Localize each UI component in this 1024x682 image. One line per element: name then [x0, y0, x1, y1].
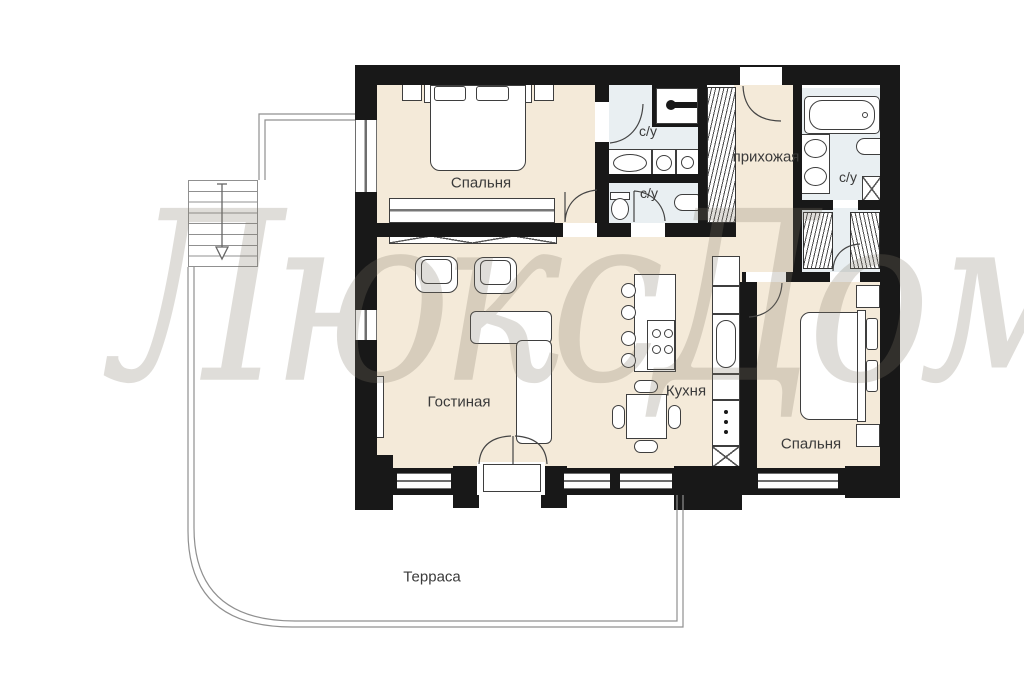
wall-pillar [355, 455, 393, 510]
double-bed [800, 312, 860, 420]
sink [613, 154, 647, 172]
wall-top [355, 65, 900, 85]
wall-masterbath-stub [793, 200, 833, 210]
wall-bath-divider [609, 174, 700, 183]
wall-kitchen-bedroom2 [740, 282, 757, 468]
window [620, 473, 672, 489]
bar-stool [621, 305, 636, 320]
tv [376, 376, 384, 438]
sink [804, 167, 827, 186]
room-hallway-floor [734, 85, 793, 282]
stove-burner-icon [664, 345, 673, 354]
nightstand [856, 424, 880, 447]
pillow [866, 318, 878, 350]
dishwasher-dot-icon [724, 420, 728, 424]
toilet-bowl [611, 198, 629, 220]
kitchen-counter [712, 374, 740, 400]
dining-chair [634, 440, 658, 453]
door-opening [563, 223, 597, 237]
dishwasher-dot-icon [724, 430, 728, 434]
window [564, 473, 610, 489]
pillow [434, 86, 466, 101]
kitchen-sink [716, 320, 736, 368]
room-label-bathroom-top: с/у [639, 123, 657, 139]
door-opening [746, 272, 786, 282]
washer-drum-icon [656, 155, 672, 171]
door-opening [631, 223, 665, 237]
room-label-terrace: Терраса [403, 569, 461, 586]
window [355, 310, 377, 340]
washing-machine [862, 176, 882, 202]
stove-burner-icon [664, 329, 673, 338]
room-label-kitchen: Кухня [666, 383, 706, 400]
pillow [866, 360, 878, 392]
room-label-bathroom-mid: с/у [640, 185, 658, 201]
dining-chair [634, 380, 658, 393]
bed-headboard [857, 310, 866, 422]
dishwasher-dot-icon [724, 410, 728, 414]
armchair-seat [480, 260, 511, 285]
toilet [856, 138, 882, 155]
pillow [476, 86, 509, 101]
room-label-bedroom-1: Спальня [451, 175, 511, 192]
room-label-hallway: прихожая [733, 149, 800, 166]
bidet [674, 194, 699, 211]
wall-pillar [674, 466, 742, 510]
kitchen-counter [712, 256, 740, 286]
stove-burner-icon [652, 345, 661, 354]
dining-chair [612, 405, 625, 429]
door-opening [830, 272, 860, 282]
wall-closet-bottom [698, 223, 736, 237]
sink [681, 156, 694, 169]
door-opening [595, 102, 609, 142]
nightstand [402, 84, 422, 101]
walkin-wardrobe [850, 212, 880, 269]
floor-plan: Спальня с/у с/у прихожая с/у Гостиная Ку… [0, 0, 1024, 682]
stove-burner-icon [652, 329, 661, 338]
entry-door-opening [740, 67, 782, 85]
bar-stool [621, 283, 636, 298]
kitchen-counter [712, 286, 740, 314]
room-label-bedroom-2: Спальня [781, 436, 841, 453]
wall-pillar [453, 466, 479, 508]
wardrobe [389, 198, 555, 223]
window [355, 120, 377, 192]
armchair-seat [421, 259, 452, 284]
terrace-stairs [188, 180, 258, 267]
window [397, 473, 451, 489]
room-label-living: Гостиная [428, 394, 491, 411]
wall-pillar [845, 466, 900, 498]
bar-stool [621, 353, 636, 368]
bar-stool [621, 331, 636, 346]
wall-bedroom1-living [377, 223, 563, 237]
nightstand [856, 285, 880, 308]
bathtub-drain-icon [862, 112, 868, 118]
room-label-bathroom-master: с/у [839, 169, 857, 185]
wall-hallway-masterbath [793, 85, 802, 282]
terrace-door-step [483, 464, 541, 492]
sink [804, 139, 827, 158]
wall-masterbath-stub [858, 200, 882, 210]
window [758, 473, 838, 489]
sofa-chaise [516, 340, 552, 444]
dining-table [626, 394, 667, 439]
nightstand [534, 84, 554, 101]
fridge [712, 446, 740, 468]
shower-arm-icon [674, 102, 697, 108]
dining-chair [668, 405, 681, 429]
walkin-wardrobe [803, 212, 833, 269]
